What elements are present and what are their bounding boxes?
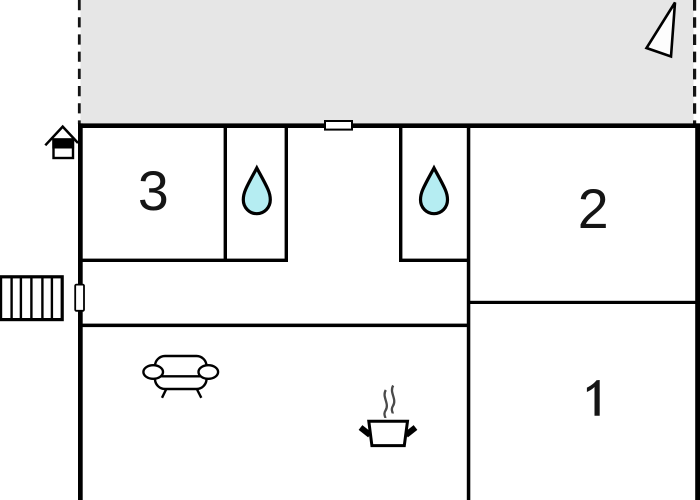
svg-text:3: 3 bbox=[138, 160, 169, 222]
svg-text:2: 2 bbox=[578, 178, 609, 240]
